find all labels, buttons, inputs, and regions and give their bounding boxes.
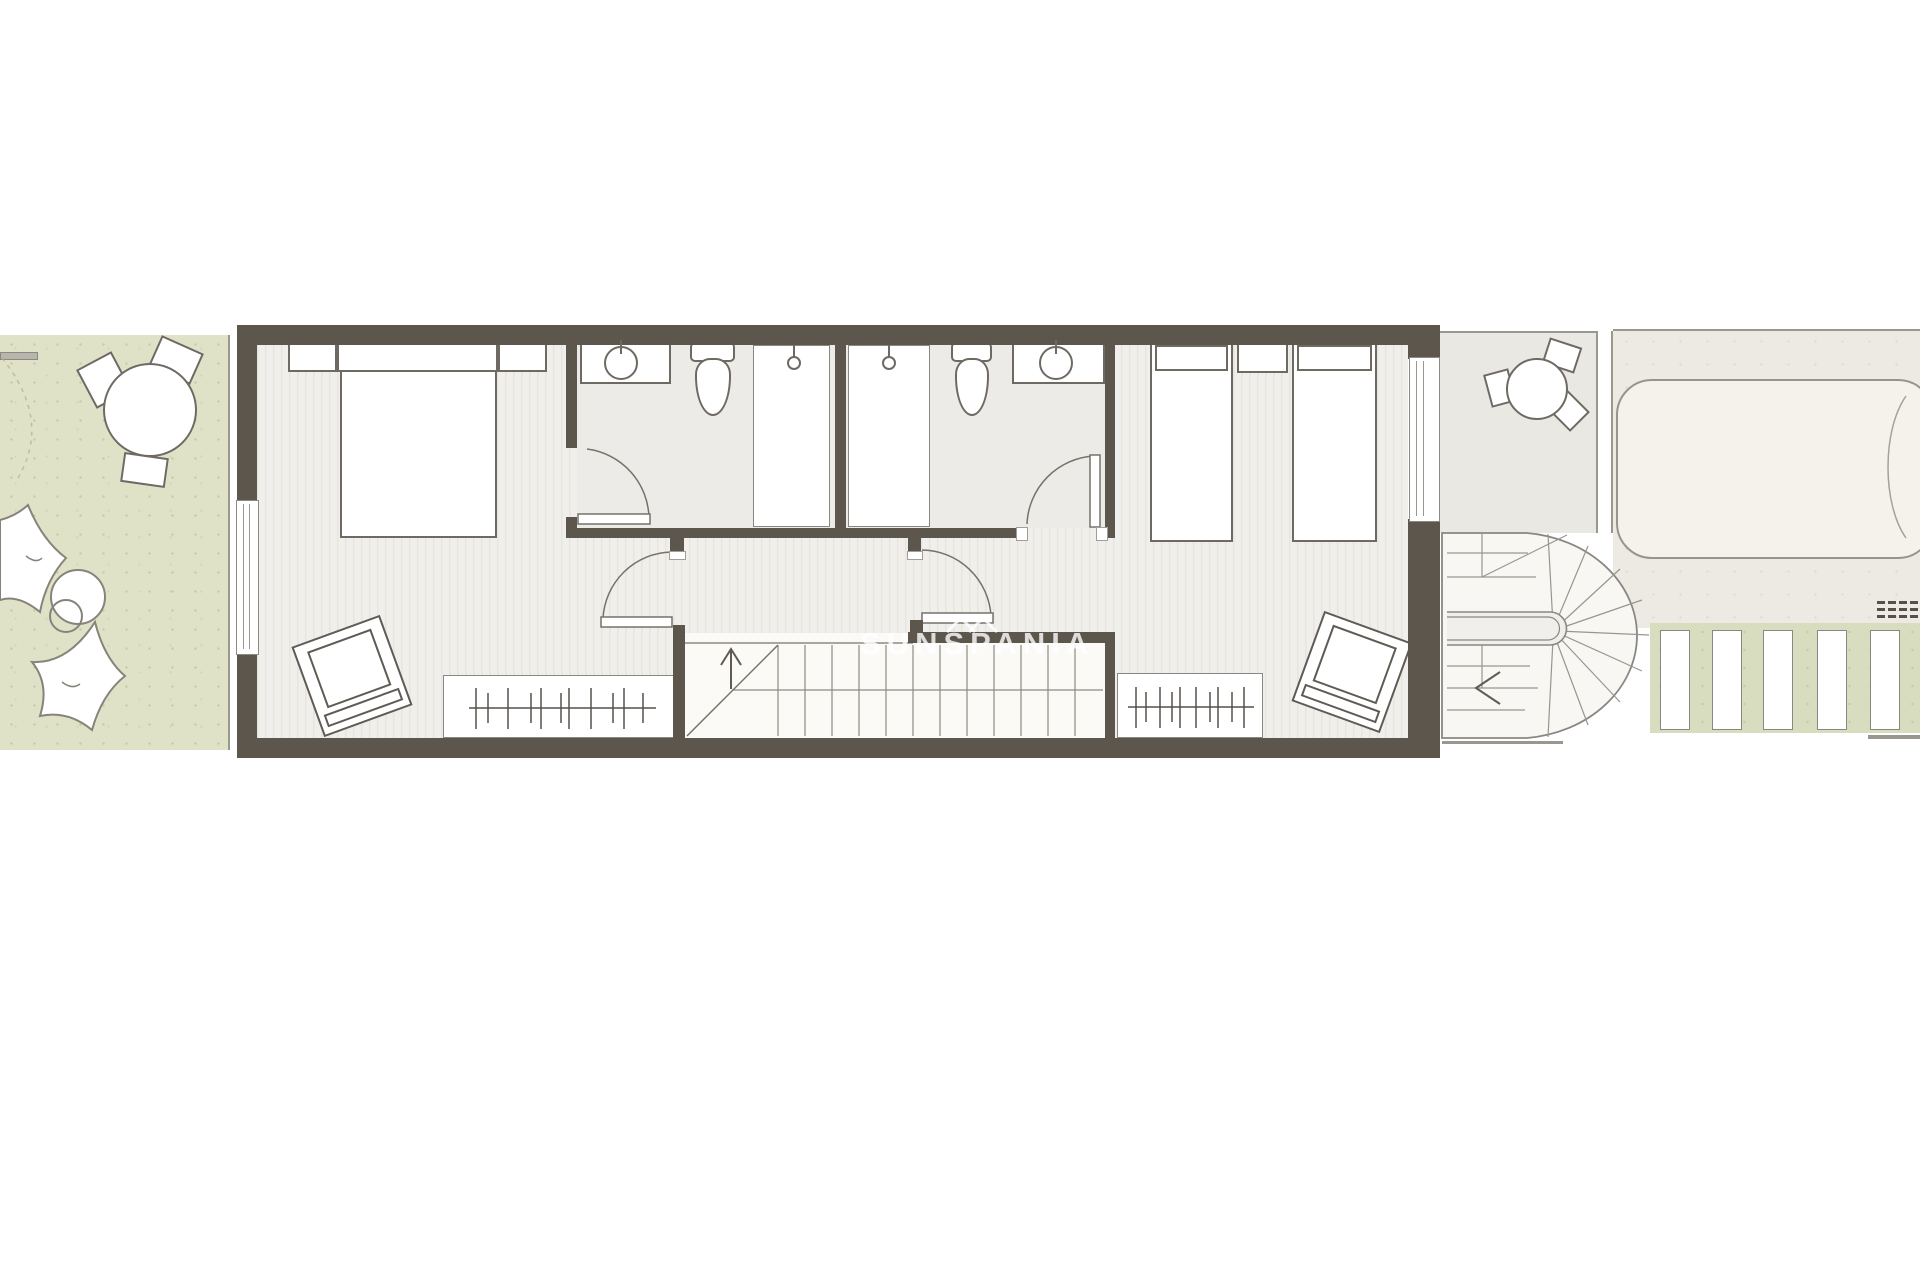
door-frame [1096,527,1108,541]
garden-dashed-path [2,358,32,478]
garden-table-icon [103,363,197,457]
single-bed-icon [1292,342,1377,542]
stair-up-arrow-icon [721,649,741,689]
double-bed-icon [340,370,497,538]
nightstand-icon [288,342,337,372]
wardrobe-icon [443,675,675,738]
window-icon [1409,357,1440,522]
wall-stair-right [1105,632,1115,743]
terrace-table-icon [1506,358,1568,420]
wall-bath-middle [835,345,846,528]
window-icon [236,500,259,655]
door-frame [1016,527,1028,541]
shower-head-icon [787,356,801,370]
plant-pot-icon [51,570,105,624]
wall-bath2-east [1105,345,1115,538]
wall-left-lower [237,652,257,758]
door-swing-arc [1027,456,1094,524]
nightstand-icon [498,342,547,372]
wall-bath-south-a [566,528,1025,538]
double-bed-headboard [337,342,498,372]
door-swing-arc [587,449,649,518]
walkway-plank-icon [1712,630,1742,730]
bed-pillow [1155,345,1228,371]
wardrobe-hangers-icon [444,676,674,737]
wall-bottom [237,738,1440,758]
door-frame [669,551,686,560]
pool-inner-curve [1888,396,1906,538]
shower-icon [753,345,830,527]
door-leaf-icon [1090,455,1100,527]
window-mullion [1416,361,1417,516]
wardrobe-icon [1117,673,1263,738]
walkway-plank-icon [1870,630,1900,730]
door-leaf-icon [601,617,672,627]
single-bed-icon [1150,342,1233,542]
door-frame [907,551,923,560]
bean-bag-icon [32,622,125,730]
door-leaf-icon [578,514,650,524]
floor-plan: SUNSPANIA [0,0,1920,1280]
tap-icon [1055,340,1057,354]
shower-head-icon [882,356,896,370]
nightstand-icon [1237,342,1288,373]
wall-stair-left [673,625,685,743]
wall-top [237,325,1440,345]
window-mullion [243,504,244,649]
drain-grate-icon [1877,601,1919,619]
wall-left-upper [237,325,257,502]
door-swing-arc [603,552,671,619]
wall-right-upper [1408,325,1440,359]
watermark-text: SUNSPANIA [860,626,1060,662]
tap-icon [620,340,622,354]
door-swing-arc [922,550,991,616]
shower-icon [848,345,930,527]
wall-right-lower [1408,519,1440,758]
wardrobe-hangers-icon [1118,674,1262,737]
walkway-plank-icon [1763,630,1793,730]
window-mullion [249,504,250,649]
wall-bath1-west [566,345,577,448]
exterior-spiral-stairs-icon [1440,525,1660,755]
walkway-plank-icon [1660,630,1690,730]
window-mullion [1423,361,1424,516]
walkway-plank-icon [1817,630,1847,730]
bed-pillow [1297,345,1372,371]
